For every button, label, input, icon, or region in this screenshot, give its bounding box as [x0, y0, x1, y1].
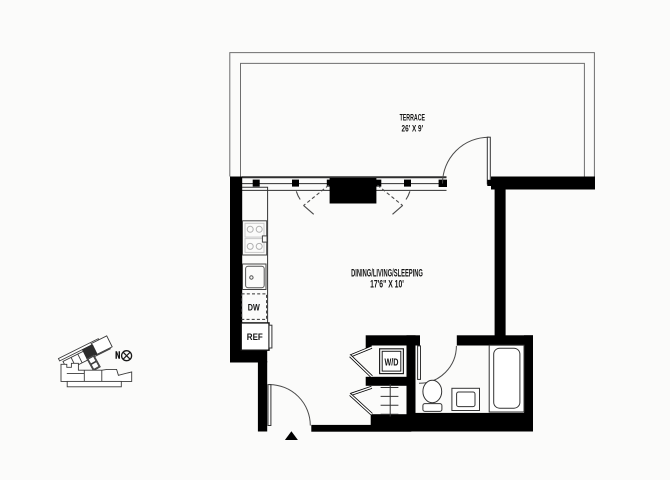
svg-text:DW: DW	[248, 302, 261, 313]
svg-text:W/D: W/D	[385, 357, 399, 368]
svg-text:26' X 9': 26' X 9'	[402, 122, 424, 133]
svg-text:DINING/LIVING/SLEEPING: DINING/LIVING/SLEEPING	[351, 267, 423, 279]
svg-text:REF: REF	[247, 332, 263, 343]
svg-text:17'6" X 10': 17'6" X 10'	[370, 279, 404, 291]
svg-text:TERRACE: TERRACE	[400, 111, 425, 122]
